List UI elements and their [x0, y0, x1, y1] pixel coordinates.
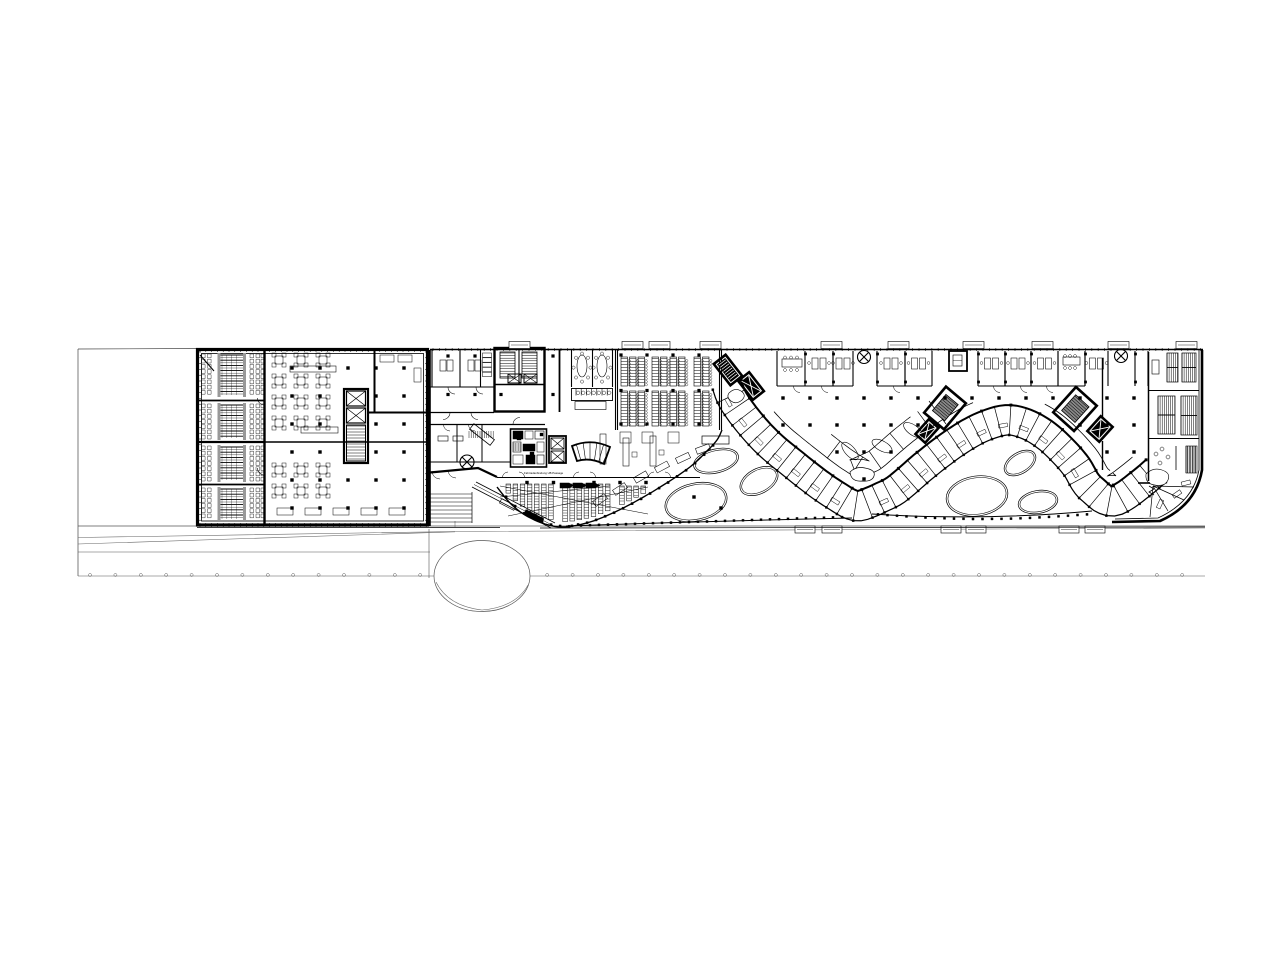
svg-text:Fahrradanbindung UB Passage: Fahrradanbindung UB Passage: [524, 471, 564, 475]
